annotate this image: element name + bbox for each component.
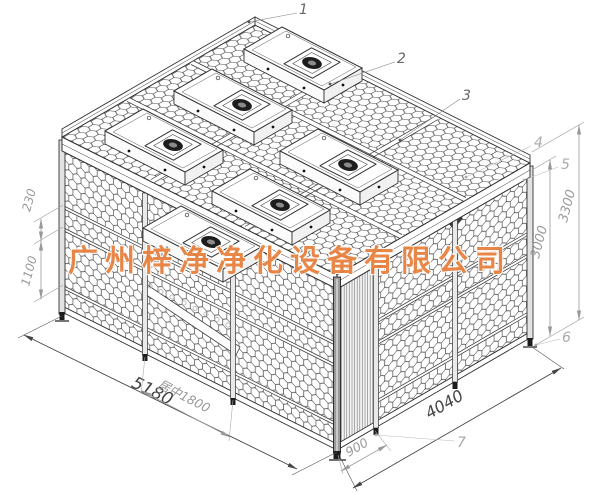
dimension-right: 3000 3300 (528, 122, 584, 346)
callout-7: 7 (457, 435, 466, 451)
drawing-canvas: 230 1100 3000 3300 5180 居中1800 4040 (0, 0, 600, 493)
dim-1100: 1100 (18, 254, 40, 287)
callout-2: 2 (397, 51, 406, 67)
company-watermark: 广州梓净净化设备有限公司 (68, 244, 512, 279)
callout-6: 6 (562, 330, 571, 346)
callout-3: 3 (462, 88, 471, 104)
strip-curtain-door (337, 267, 375, 450)
clean-booth-drawing: 230 1100 3000 3300 5180 居中1800 4040 (0, 0, 600, 493)
dim-3300: 3300 (556, 188, 579, 224)
callout-1: 1 (299, 2, 308, 18)
dimension-left: 230 1100 (18, 187, 63, 302)
callout-5: 5 (561, 157, 570, 173)
dim-230: 230 (19, 187, 39, 213)
callout-4: 4 (534, 135, 543, 151)
